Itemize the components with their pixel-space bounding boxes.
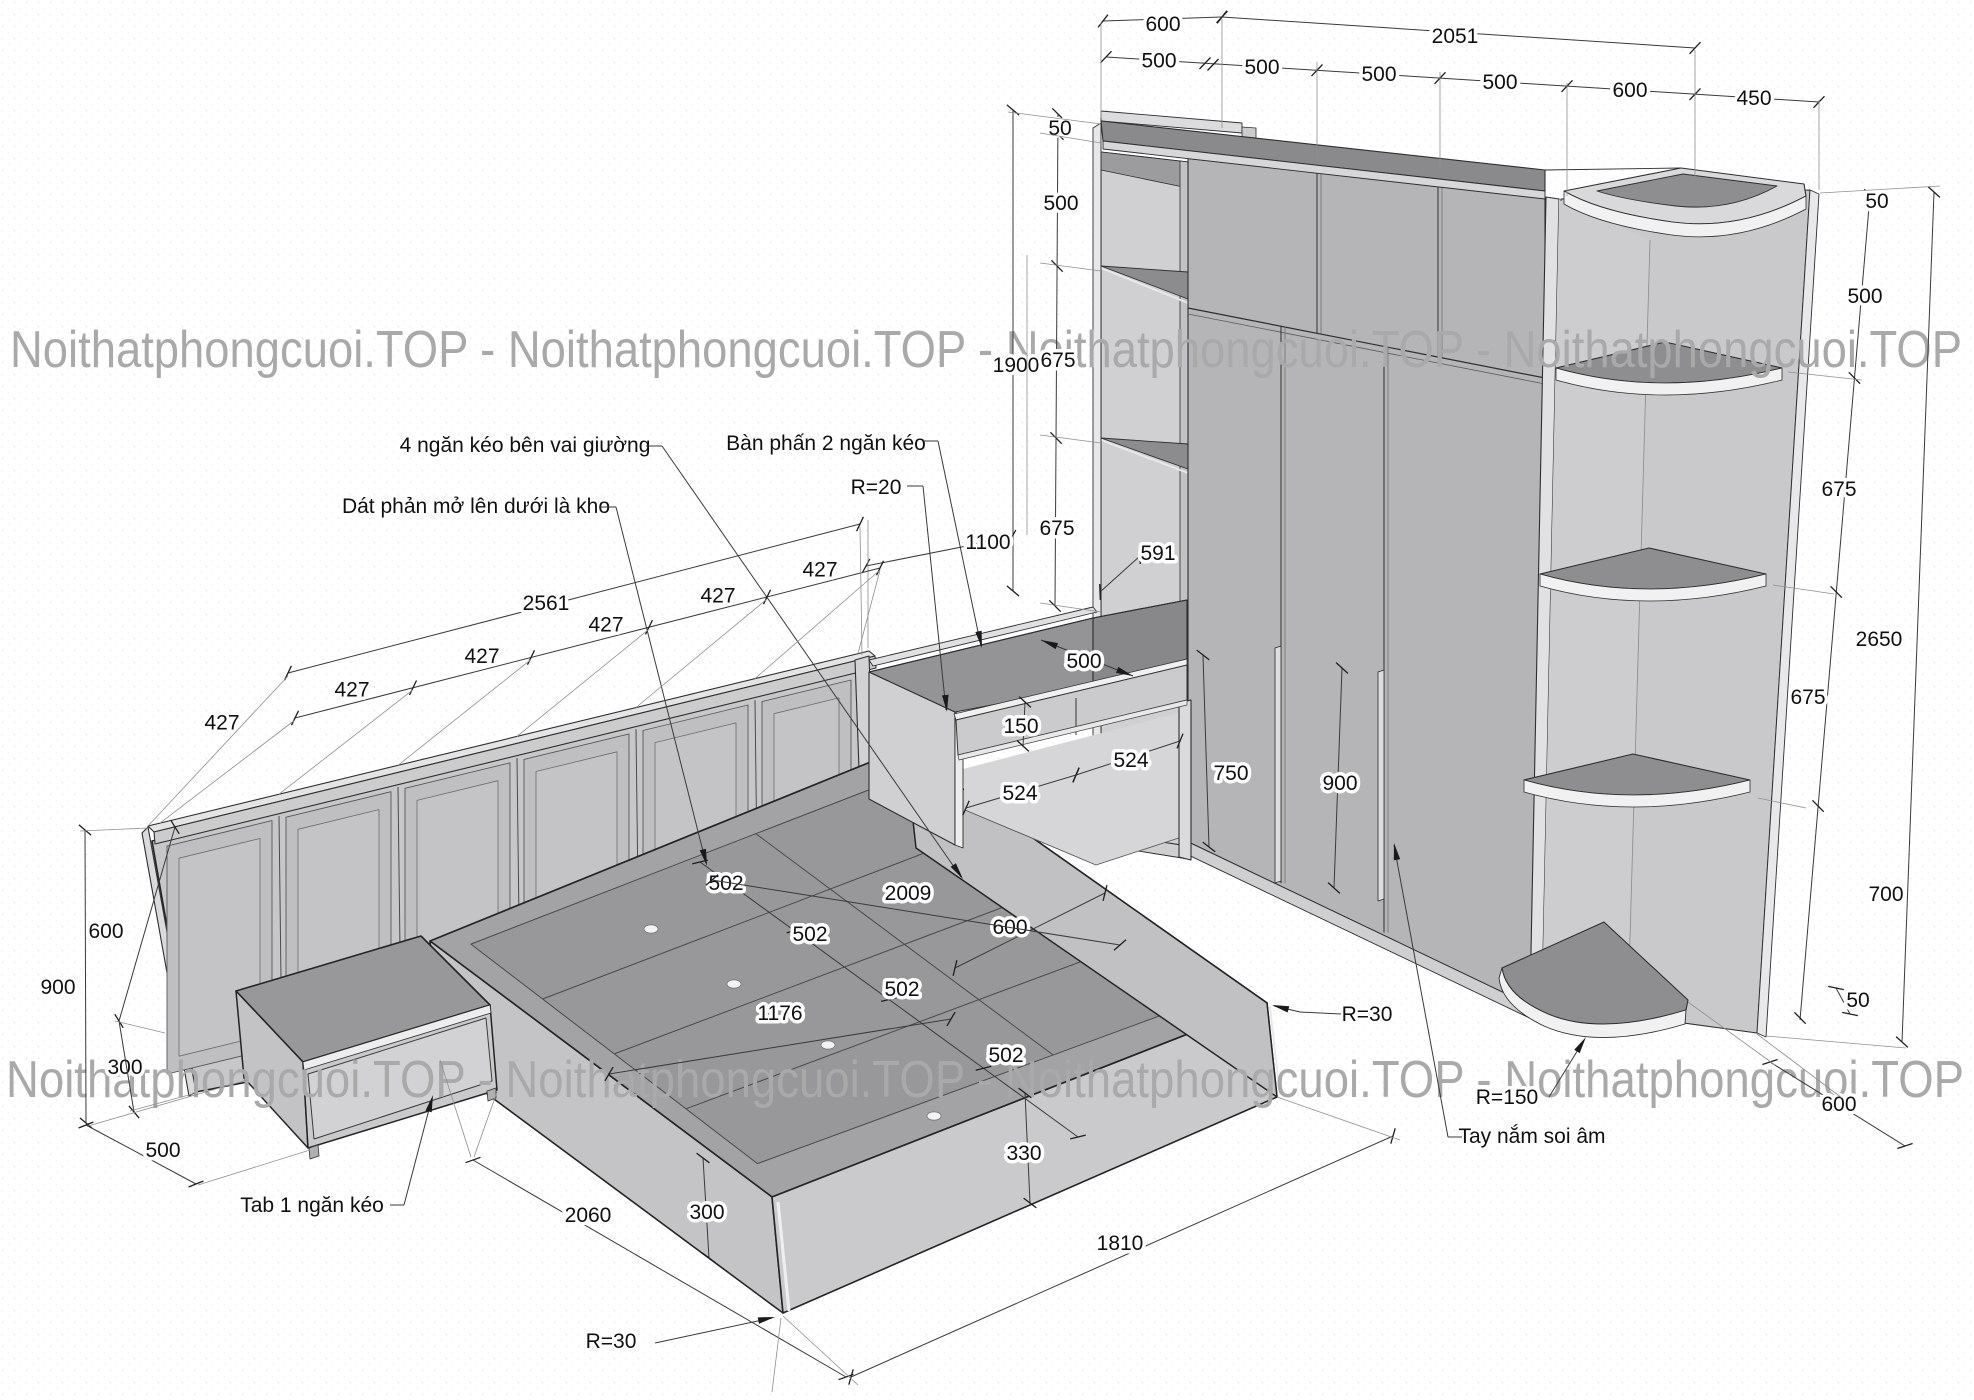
svg-text:Noithatphongcuoi.TOP - Noithat: Noithatphongcuoi.TOP - Noithatphongcuoi.… — [10, 321, 1962, 379]
svg-text:Tab 1 ngăn kéo: Tab 1 ngăn kéo — [240, 1194, 384, 1217]
svg-text:2561: 2561 — [523, 592, 570, 615]
svg-text:675: 675 — [1790, 686, 1825, 709]
svg-text:524: 524 — [1113, 749, 1148, 772]
svg-text:1810: 1810 — [1097, 1232, 1144, 1255]
svg-text:Dát phản mở lên dưới là kho: Dát phản mở lên dưới là kho — [342, 495, 610, 518]
svg-text:500: 500 — [1361, 63, 1396, 86]
svg-text:427: 427 — [802, 558, 837, 581]
svg-text:502: 502 — [708, 872, 743, 895]
svg-text:330: 330 — [1006, 1142, 1041, 1165]
svg-text:2060: 2060 — [565, 1204, 612, 1227]
svg-text:600: 600 — [1612, 79, 1647, 102]
svg-text:900: 900 — [1322, 772, 1357, 795]
svg-text:Bàn phấn 2 ngăn kéo: Bàn phấn 2 ngăn kéo — [726, 432, 926, 455]
svg-text:900: 900 — [40, 976, 75, 999]
svg-text:500: 500 — [1043, 192, 1078, 215]
svg-text:1900: 1900 — [993, 354, 1040, 377]
svg-text:1176: 1176 — [757, 1002, 802, 1025]
svg-text:502: 502 — [792, 923, 827, 946]
svg-text:150: 150 — [1003, 715, 1038, 738]
svg-text:R=30: R=30 — [586, 1330, 637, 1353]
svg-text:502: 502 — [884, 978, 919, 1001]
svg-text:50: 50 — [1846, 989, 1869, 1012]
svg-text:750: 750 — [1213, 762, 1248, 785]
svg-text:524: 524 — [1002, 782, 1037, 805]
svg-text:R=20: R=20 — [851, 476, 902, 499]
svg-text:427: 427 — [588, 613, 623, 636]
svg-text:50: 50 — [1865, 190, 1888, 213]
svg-text:675: 675 — [1040, 349, 1075, 372]
svg-text:500: 500 — [145, 1139, 180, 1162]
svg-text:4 ngăn kéo bên vai giường: 4 ngăn kéo bên vai giường — [400, 434, 651, 457]
svg-text:Tay nắm soi âm: Tay nắm soi âm — [1458, 1125, 1605, 1148]
svg-text:427: 427 — [700, 585, 735, 608]
svg-text:675: 675 — [1821, 478, 1856, 501]
svg-text:R=150: R=150 — [1476, 1086, 1538, 1109]
svg-text:Noithatphongcuoi.TOP - Noithat: Noithatphongcuoi.TOP - Noithatphongcuoi.… — [6, 1051, 1964, 1109]
svg-text:500: 500 — [1482, 71, 1517, 94]
svg-text:450: 450 — [1736, 87, 1771, 110]
svg-text:500: 500 — [1141, 49, 1176, 72]
svg-text:591: 591 — [1140, 542, 1175, 565]
svg-text:500: 500 — [1244, 56, 1279, 79]
svg-text:300: 300 — [689, 1201, 724, 1224]
svg-text:500: 500 — [1847, 285, 1882, 308]
svg-text:502: 502 — [988, 1044, 1023, 1067]
svg-text:2009: 2009 — [885, 882, 932, 905]
svg-text:R=30: R=30 — [1342, 1003, 1393, 1026]
svg-text:427: 427 — [334, 678, 369, 701]
svg-text:600: 600 — [88, 920, 123, 943]
svg-text:600: 600 — [1145, 13, 1180, 36]
svg-text:427: 427 — [464, 645, 499, 668]
svg-text:2051: 2051 — [1432, 25, 1479, 48]
svg-text:600: 600 — [1821, 1093, 1856, 1116]
svg-text:1100: 1100 — [965, 531, 1010, 554]
svg-text:700: 700 — [1868, 883, 1903, 906]
svg-text:675: 675 — [1039, 517, 1074, 540]
svg-text:2650: 2650 — [1856, 628, 1903, 651]
svg-text:427: 427 — [204, 712, 239, 735]
svg-text:500: 500 — [1066, 650, 1101, 673]
